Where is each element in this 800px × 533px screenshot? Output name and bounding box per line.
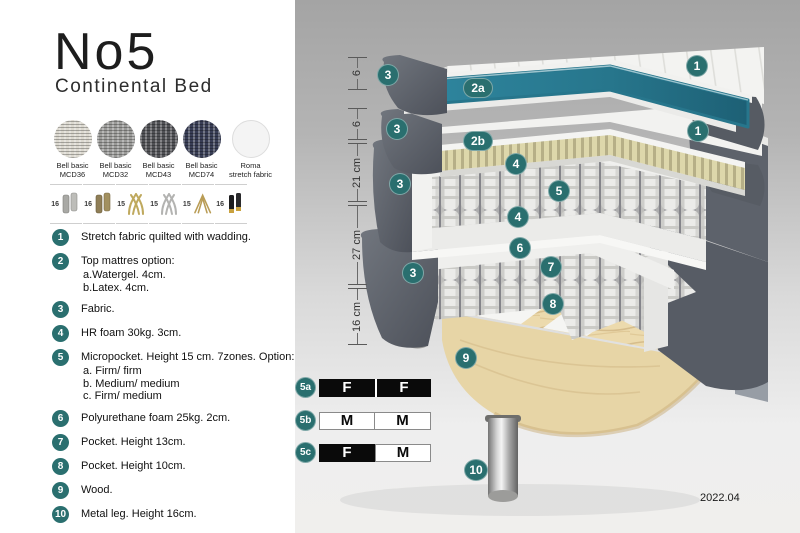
layer-sub-option: a.Watergel. 4cm. bbox=[83, 269, 175, 282]
firmness-row-5b: 5b M M bbox=[295, 410, 431, 431]
fabric-swatch-image bbox=[140, 120, 178, 158]
leg-option-splayed-silver: 15 bbox=[149, 184, 181, 224]
layer-sub-option: b.Latex. 4cm. bbox=[83, 282, 175, 295]
layer-description: Pocket. Height 10cm. bbox=[81, 458, 186, 475]
list-item: 7 Pocket. Height 13cm. bbox=[52, 434, 290, 451]
fabric-swatch-image bbox=[232, 120, 270, 158]
page-subtitle: Continental Bed bbox=[55, 76, 213, 98]
layer-sub-option: a. Firm/ firm bbox=[83, 365, 294, 378]
layer-description: Top mattres option: bbox=[81, 253, 175, 269]
fabric-swatch: Bell basicMCD74 bbox=[181, 120, 222, 179]
list-item: 8 Pocket. Height 10cm. bbox=[52, 458, 290, 475]
leg-option-splayed-gold: 15 bbox=[116, 184, 148, 224]
dimension-label: 21 cm bbox=[351, 156, 363, 190]
callout-badge: 3 bbox=[389, 173, 411, 195]
front-leg bbox=[485, 415, 521, 502]
leg-options: 16 16 15 15 bbox=[50, 184, 247, 224]
leg-height: 16 bbox=[215, 201, 224, 208]
ruler-tick bbox=[348, 344, 367, 345]
leg-height: 15 bbox=[149, 201, 158, 208]
layer-number-badge: 10 bbox=[52, 506, 69, 523]
firmness-cell: M bbox=[375, 444, 431, 462]
callout-badge: 7 bbox=[540, 256, 562, 278]
firmness-badge: 5a bbox=[295, 377, 316, 398]
leg-icon bbox=[126, 192, 147, 216]
leg-icon bbox=[192, 192, 214, 216]
fabric-swatch-image bbox=[97, 120, 135, 158]
leg-icon bbox=[93, 192, 114, 216]
fabric-swatch: Bell basicMCD43 bbox=[138, 120, 179, 179]
layer-description: Metal leg. Height 16cm. bbox=[81, 506, 197, 523]
leg-icon bbox=[225, 192, 246, 216]
callout-badge: 10 bbox=[464, 459, 488, 481]
list-item: 4 HR foam 30kg. 3cm. bbox=[52, 325, 290, 342]
layer-number-badge: 7 bbox=[52, 434, 69, 451]
layer-number-badge: 5 bbox=[52, 349, 69, 366]
fabric-swatch-image bbox=[183, 120, 221, 158]
dimension-label: 6 bbox=[351, 119, 363, 129]
callout-badge: 3 bbox=[377, 64, 399, 86]
fabric-swatch-image bbox=[54, 120, 92, 158]
dimension-label: 16 cm bbox=[351, 300, 363, 334]
firmness-badge: 5b bbox=[295, 410, 316, 431]
firmness-row-5c: 5c F M bbox=[295, 442, 431, 463]
leg-option-cylinder-bronze: 16 bbox=[83, 184, 115, 224]
swatch-code: stretch fabric bbox=[229, 171, 272, 180]
firmness-cell: F bbox=[375, 379, 431, 397]
layer-description: Micropocket. Height 15 cm. 7zones. Optio… bbox=[81, 349, 294, 365]
callout-badge: 1 bbox=[687, 120, 709, 142]
info-panel: No5 Continental Bed Bell basicMCD36 Bell… bbox=[0, 0, 295, 533]
callout-badge: 2b bbox=[463, 131, 493, 151]
callout-badge: 1 bbox=[686, 55, 708, 77]
firmness-badge: 5c bbox=[295, 442, 316, 463]
firmness-cell: M bbox=[375, 412, 431, 430]
dimension-label: 6 bbox=[351, 68, 363, 78]
fabric-swatch: Bell basicMCD32 bbox=[95, 120, 136, 179]
leg-height: 15 bbox=[182, 201, 191, 208]
fabric-swatches: Bell basicMCD36 Bell basicMCD32 Bell bas… bbox=[52, 120, 271, 179]
list-item: 10 Metal leg. Height 16cm. bbox=[52, 506, 290, 523]
version-date: 2022.04 bbox=[700, 492, 740, 504]
fabric-swatch: Romastretch fabric bbox=[230, 120, 271, 179]
layer-number-badge: 6 bbox=[52, 410, 69, 427]
list-item: 6 Polyurethane foam 25kg. 2cm. bbox=[52, 410, 290, 427]
swatch-code: MCD74 bbox=[185, 171, 217, 180]
callout-badge: 4 bbox=[507, 206, 529, 228]
layer-number-badge: 3 bbox=[52, 301, 69, 318]
fabric-swatch: Bell basicMCD36 bbox=[52, 120, 93, 179]
leg-option-hairpin-gold: 15 bbox=[182, 184, 214, 224]
dimension-segment: 6 bbox=[346, 108, 368, 140]
callout-badge: 6 bbox=[509, 237, 531, 259]
page-title: No5 bbox=[54, 22, 158, 82]
leg-height: 15 bbox=[116, 201, 125, 208]
dimension-segment: 27 cm bbox=[346, 205, 368, 285]
callout-badge: 9 bbox=[455, 347, 477, 369]
layer-number-badge: 1 bbox=[52, 229, 69, 246]
dimension-label: 27 cm bbox=[351, 228, 363, 262]
callout-badge: 4 bbox=[505, 153, 527, 175]
floor-shadow bbox=[340, 484, 700, 516]
leg-height: 16 bbox=[83, 201, 92, 208]
callout-badge: 3 bbox=[402, 262, 424, 284]
ruler-tick bbox=[348, 284, 367, 285]
leg-height: 16 bbox=[50, 201, 59, 208]
layer-number-badge: 2 bbox=[52, 253, 69, 270]
swatch-code: MCD32 bbox=[99, 171, 131, 180]
firmness-row-5a: 5a F F bbox=[295, 377, 431, 398]
callout-badge: 5 bbox=[548, 180, 570, 202]
layer-legend: 1 Stretch fabric quilted with wadding. 2… bbox=[52, 229, 290, 530]
leg-option-cylinder-silver: 16 bbox=[50, 184, 82, 224]
leg-icon bbox=[159, 192, 180, 216]
layer-description: Wood. bbox=[81, 482, 113, 499]
layer-sub-option: b. Medium/ medium bbox=[83, 378, 294, 391]
firmness-cell: M bbox=[319, 412, 375, 430]
callout-badge: 2a bbox=[463, 78, 493, 98]
ruler-tick bbox=[348, 89, 367, 90]
layer-number-badge: 4 bbox=[52, 325, 69, 342]
swatch-code: MCD43 bbox=[142, 171, 174, 180]
layer-description: Polyurethane foam 25kg. 2cm. bbox=[81, 410, 230, 427]
list-item: 3 Fabric. bbox=[52, 301, 290, 318]
list-item: 9 Wood. bbox=[52, 482, 290, 499]
ruler-tick bbox=[348, 139, 367, 140]
leg-icon bbox=[60, 192, 81, 216]
list-item: 5 Micropocket. Height 15 cm. 7zones. Opt… bbox=[52, 349, 290, 403]
layer-number-badge: 9 bbox=[52, 482, 69, 499]
firmness-cell: F bbox=[319, 444, 375, 462]
callout-badge: 8 bbox=[542, 293, 564, 315]
layer-description: Fabric. bbox=[81, 301, 115, 318]
ruler-tick bbox=[348, 201, 367, 202]
bed-diagram-panel: 6 6 21 cm 27 cm 16 cm 1 3 2a 1 3 2b 4 5 … bbox=[295, 0, 800, 533]
callout-badge: 3 bbox=[386, 118, 408, 140]
list-item: 1 Stretch fabric quilted with wadding. bbox=[52, 229, 290, 246]
layer-sub-option: c. Firm/ medium bbox=[83, 390, 294, 403]
list-item: 2 Top mattres option: a.Watergel. 4cm. b… bbox=[52, 253, 290, 294]
leg-option-black-gold-tip: 16 bbox=[215, 184, 247, 224]
firmness-cell: F bbox=[319, 379, 375, 397]
swatch-code: MCD36 bbox=[56, 171, 88, 180]
layer-number-badge: 8 bbox=[52, 458, 69, 475]
dimension-segment: 6 bbox=[346, 57, 368, 90]
layer-description: Stretch fabric quilted with wadding. bbox=[81, 229, 251, 246]
dimension-segment: 16 cm bbox=[346, 288, 368, 345]
dimension-segment: 21 cm bbox=[346, 143, 368, 202]
layer-description: HR foam 30kg. 3cm. bbox=[81, 325, 181, 342]
layer-description: Pocket. Height 13cm. bbox=[81, 434, 186, 451]
